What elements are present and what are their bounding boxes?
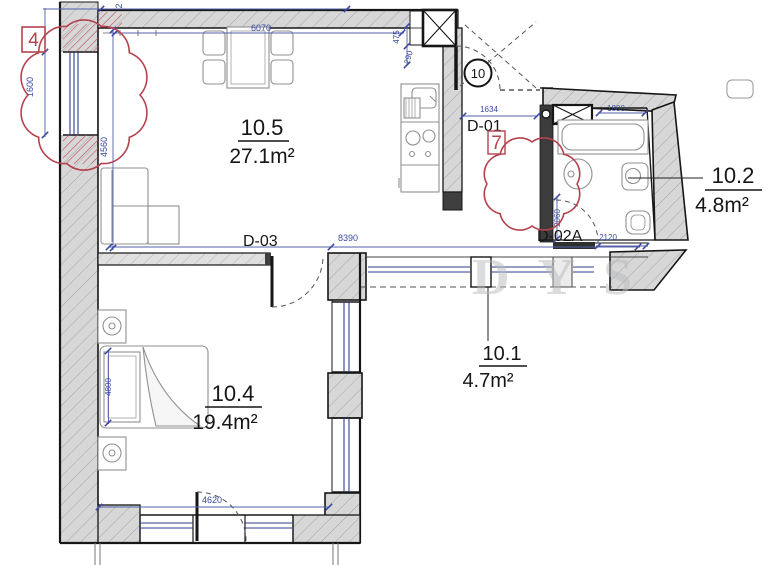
dim-kitchen-offset-b: 290 [403,49,415,65]
room-living-number: 10.5 [241,115,284,140]
wall-hall-corner [443,192,462,210]
chair [271,31,293,55]
room-living-area: 27.1m² [229,145,294,168]
revision-tag-7: 7 [488,131,505,154]
dim-bathtub: 1800 [607,104,625,113]
nightstand-bottom [98,437,126,470]
chair [203,60,225,84]
door-jamb [265,253,271,265]
bidet-sink [626,211,650,234]
dim-top-partial: 2 [114,3,124,8]
dim-bed-length: 4800 [104,378,113,396]
door-d03 [272,256,323,307]
balcony-rails [95,543,338,565]
revision-tag-4-text: 4 [28,30,39,51]
kitchen-counter [399,84,439,192]
exterior-unit-outline [727,80,753,98]
door-entry: 10 [456,22,540,90]
room-bathroom-area: 4.8m² [695,194,749,217]
dining-table [203,27,293,88]
chair [203,31,225,55]
window-bottom-wall [140,523,292,528]
dim-middle-width: 8390 [338,233,358,243]
dim-kitchen-offset-a: 475 [392,30,401,44]
room-hall-area: 4.7m² [462,370,513,392]
hinge-dot [542,110,550,118]
room-bathroom-number: 10.2 [712,163,755,188]
entry-number: 10 [471,66,485,81]
wall-corner-bottom-left [98,505,140,543]
room-bedroom-area: 19.4m² [192,411,257,434]
dim-living-depth: 4560 [99,137,109,157]
wall-bottom-right-seg [293,515,360,543]
watermark-text: DYS [472,249,660,306]
nightstand-top [98,310,126,343]
floor-plan-canvas: 10 6070 8390 1634 1800 2120 4620 1600 45… [0,0,775,565]
wall-middle-strip [98,253,270,265]
dim-living-width: 6070 [251,23,271,33]
wall-pier-right-mid [328,373,362,418]
wall-bath-right [652,102,688,240]
room-hall-number: 10.1 [483,343,522,365]
wall-left-window-gap [61,52,97,135]
revision-tag-7-text: 7 [491,133,502,154]
wall-bath-hall [540,105,553,242]
revision-hatch [63,135,98,164]
wall-kitchen-hall [443,28,462,192]
label-room-hall: 10.1 4.7m² [462,343,521,392]
label-door-d03: D-03 [243,233,278,250]
dim-hall-width: 1634 [480,105,498,114]
toilet [622,163,648,190]
shaft-x-box [423,10,456,46]
revision-hatch [63,24,98,52]
dim-bedroom-width: 4620 [202,495,222,505]
floor-plan-drawing: 10 6070 8390 1634 1800 2120 4620 1600 45… [0,0,775,565]
wall-top [98,10,458,28]
chair [271,60,293,84]
dim-bath-door: 2120 [599,233,617,242]
bathtub [558,120,648,154]
room-bedroom-number: 10.4 [212,381,255,406]
revision-hatch [98,12,122,28]
